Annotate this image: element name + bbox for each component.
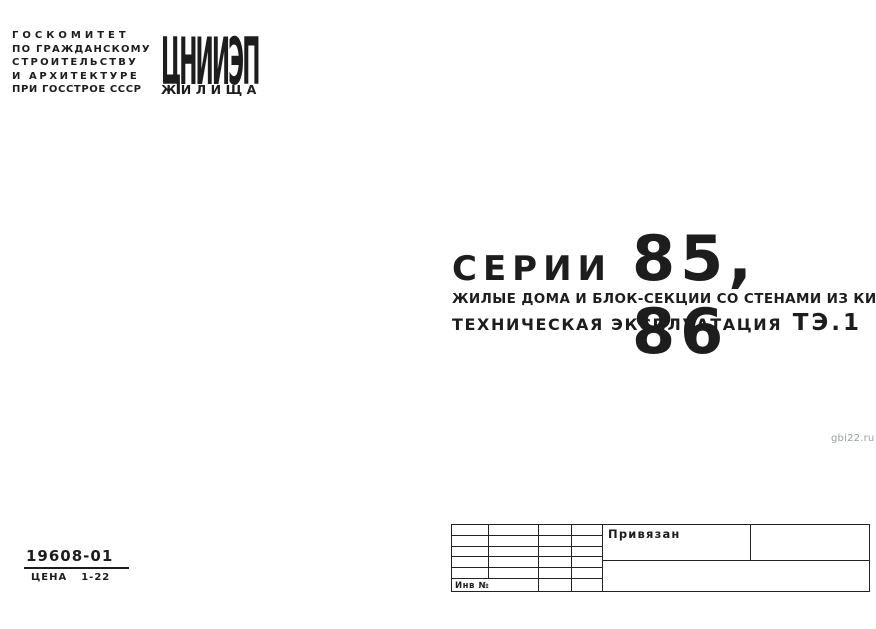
committee-line: СТРОИТЕЛЬСТВУ bbox=[12, 56, 151, 70]
stamp-grid-cell bbox=[539, 525, 572, 536]
series-label: СЕРИИ bbox=[452, 249, 612, 289]
stamp-empty-field bbox=[603, 561, 869, 591]
stamp-grid-cell bbox=[572, 579, 602, 591]
stamp-grid-cell bbox=[452, 525, 489, 536]
committee-line: ПРИ ГОССТРОЕ СССР bbox=[12, 83, 151, 97]
logo-subtitle: ЖИЛИЩА bbox=[161, 82, 247, 97]
price-label: ЦЕНА bbox=[31, 572, 67, 583]
stamp-grid-cell bbox=[572, 557, 602, 568]
bound-label-cell: Привязан bbox=[603, 525, 750, 560]
stamp-grid-cell bbox=[539, 557, 572, 568]
site-watermark: gbi22.ru bbox=[831, 433, 874, 444]
document-page: ГОСКОМИТЕТ ПО ГРАЖДАНСКОМУ СТРОИТЕЛЬСТВУ… bbox=[0, 0, 876, 629]
stamp-corner-cell bbox=[750, 525, 869, 560]
stamp-grid-cell bbox=[489, 536, 539, 547]
inventory-number-cell: Инв № bbox=[452, 579, 539, 591]
stamp-grid-cell bbox=[489, 557, 539, 568]
price-value: 1-22 bbox=[81, 572, 110, 583]
catalog-block: 19608-01 ЦЕНА 1-22 bbox=[24, 546, 129, 583]
catalog-number: 19608-01 bbox=[24, 547, 129, 569]
stamp-grid-cell bbox=[572, 547, 602, 558]
doc-code: ТЭ.1 bbox=[793, 310, 862, 336]
price-line: ЦЕНА 1-22 bbox=[24, 572, 129, 583]
stamp-grid-cell bbox=[452, 547, 489, 558]
committee-line: ПО ГРАЖДАНСКОМУ bbox=[12, 43, 151, 57]
stamp-grid-cell bbox=[489, 547, 539, 558]
series-subtitle: ЖИЛЫЕ ДОМА И БЛОК-СЕКЦИИ СО СТЕНАМИ ИЗ К… bbox=[452, 291, 872, 307]
stamp-grid-cell bbox=[452, 536, 489, 547]
stamp-grid-cell bbox=[539, 579, 572, 591]
stamp-grid-cell bbox=[489, 568, 539, 579]
tsniiep-logo: ЦНИИЭП ЖИЛИЩА bbox=[161, 30, 249, 96]
stamp-grid-cell bbox=[452, 568, 489, 579]
title-block-stamp: Инв № Привязан bbox=[451, 524, 870, 592]
stamp-grid-cell bbox=[572, 568, 602, 579]
stamp-right-top-row: Привязан bbox=[603, 525, 869, 561]
stamp-grid-cell bbox=[572, 536, 602, 547]
stamp-grid-cell bbox=[539, 536, 572, 547]
stamp-grid-cell bbox=[539, 547, 572, 558]
stamp-right-section: Привязан bbox=[603, 525, 869, 591]
stamp-grid-cell bbox=[572, 525, 602, 536]
publisher-committee: ГОСКОМИТЕТ ПО ГРАЖДАНСКОМУ СТРОИТЕЛЬСТВУ… bbox=[12, 29, 151, 97]
committee-line: ГОСКОМИТЕТ bbox=[12, 29, 151, 43]
doc-title-line: ТЕХНИЧЕСКАЯ ЭКСПЛУАТАЦИЯ ТЭ.1 bbox=[452, 310, 862, 336]
stamp-grid-cell bbox=[489, 525, 539, 536]
committee-line: И АРХИТЕКТУРЕ bbox=[12, 70, 151, 84]
stamp-revision-grid: Инв № bbox=[452, 525, 603, 591]
stamp-grid-cell bbox=[539, 568, 572, 579]
stamp-grid-cell bbox=[452, 557, 489, 568]
doc-type: ТЕХНИЧЕСКАЯ ЭКСПЛУАТАЦИЯ bbox=[452, 315, 782, 334]
